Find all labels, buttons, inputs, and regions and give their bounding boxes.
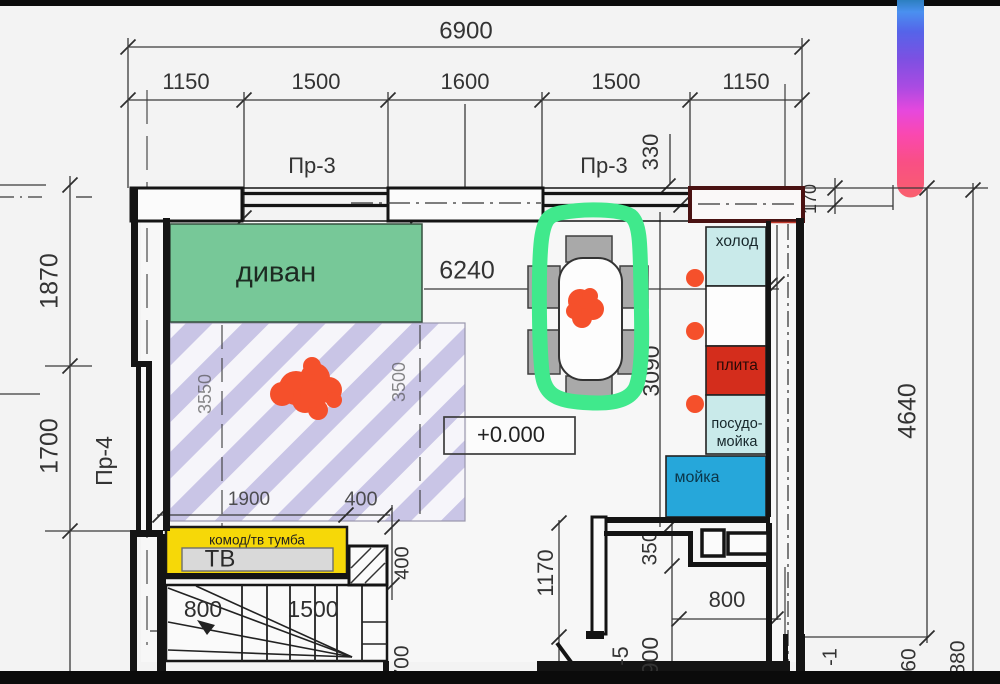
svg-text:мойка: мойка <box>717 434 759 450</box>
svg-text:1170: 1170 <box>533 549 558 596</box>
svg-text:1150: 1150 <box>722 69 769 94</box>
svg-text:400: 400 <box>391 546 413 579</box>
svg-text:Пр-3: Пр-3 <box>580 153 628 178</box>
svg-text:1700: 1700 <box>36 418 64 474</box>
svg-text:-1: -1 <box>819 648 841 666</box>
svg-text:3550: 3550 <box>195 374 215 414</box>
svg-text:1600: 1600 <box>441 69 490 94</box>
svg-text:ТВ: ТВ <box>205 545 236 572</box>
svg-text:плита: плита <box>716 357 758 374</box>
svg-text:400: 400 <box>344 488 377 510</box>
svg-text:330: 330 <box>638 134 663 171</box>
svg-text:-5: -5 <box>608 646 633 666</box>
svg-text:посудо-: посудо- <box>711 416 762 432</box>
svg-text:1500: 1500 <box>292 69 341 94</box>
svg-text:холод: холод <box>716 233 758 250</box>
svg-text:1150: 1150 <box>162 69 209 94</box>
svg-text:1900: 1900 <box>228 489 270 510</box>
svg-text:4640: 4640 <box>894 383 922 439</box>
svg-text:диван: диван <box>236 257 316 289</box>
svg-text:1870: 1870 <box>36 253 64 309</box>
svg-text:Пр-4: Пр-4 <box>91 436 117 486</box>
svg-text:60: 60 <box>898 648 921 671</box>
svg-text:+0.000: +0.000 <box>477 422 545 447</box>
svg-text:6900: 6900 <box>439 17 492 44</box>
svg-text:3500: 3500 <box>389 362 409 402</box>
svg-text:1500: 1500 <box>592 69 641 94</box>
svg-text:6240: 6240 <box>439 257 495 285</box>
svg-text:800: 800 <box>184 596 222 622</box>
svg-text:мойка: мойка <box>674 469 719 486</box>
svg-text:Пр-3: Пр-3 <box>288 153 336 178</box>
svg-text:1500: 1500 <box>287 596 338 622</box>
svg-text:900: 900 <box>637 637 663 675</box>
svg-text:880: 880 <box>947 640 970 675</box>
svg-text:800: 800 <box>709 587 746 612</box>
